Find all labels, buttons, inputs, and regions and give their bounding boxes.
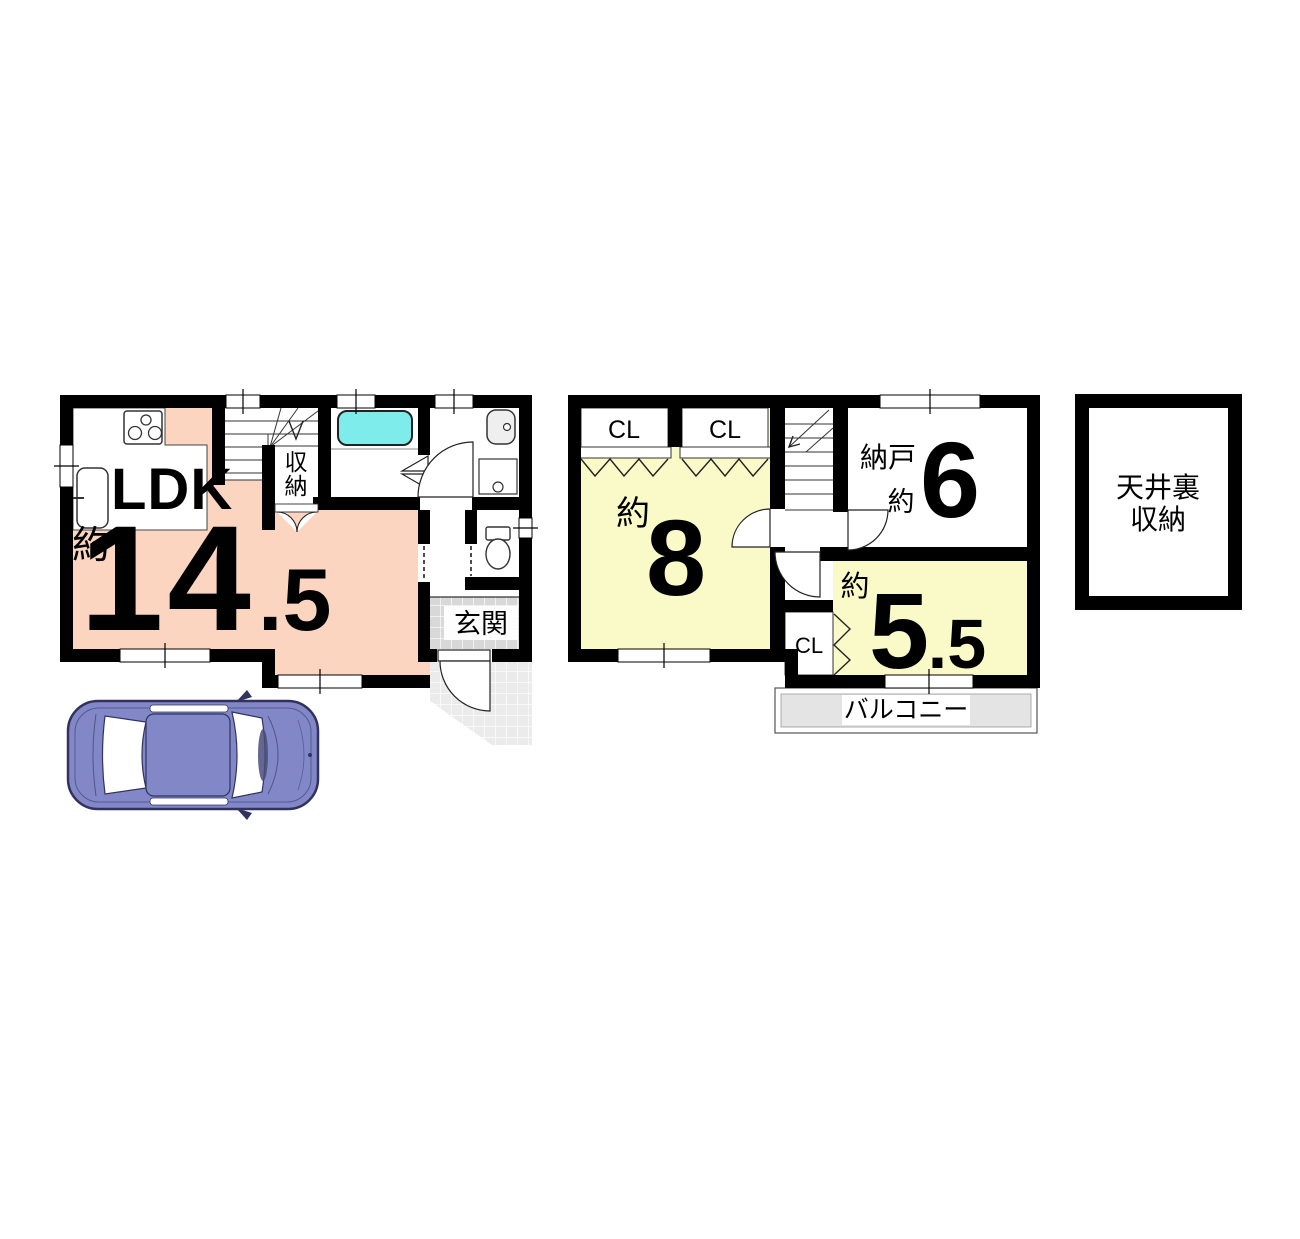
stairs-2f-icon: [785, 408, 833, 510]
closet-b-label: CL: [709, 416, 741, 444]
room8-area-label: 8: [646, 497, 706, 618]
storeroom-name-label: 納戸: [860, 442, 916, 473]
ldk-area-label: 14: [80, 494, 255, 662]
door-arc: [848, 510, 888, 550]
car-side-window: [150, 705, 228, 712]
room55-approx-label: 約: [840, 570, 869, 603]
floorplan-page: LDK 約 14 .5 収納 玄関: [0, 0, 1300, 1239]
closet-a-label: CL: [608, 416, 640, 444]
room55-area-label: 5: [869, 570, 929, 691]
car-vent: [258, 729, 268, 781]
room55-area-frac-label: .5: [928, 605, 986, 683]
attic-label-line2: 収納: [1130, 504, 1186, 535]
washer-pan-icon: [479, 459, 517, 494]
entrance-label: 玄関: [454, 609, 508, 639]
room8-approx-label: 約: [616, 495, 650, 533]
storeroom-area-label: 6: [920, 419, 980, 540]
car-emblem: [308, 753, 312, 757]
car-side-window: [150, 798, 228, 805]
door-leaf: [438, 650, 490, 661]
car-rear-window: [103, 716, 147, 794]
closet-c-label: CL: [795, 633, 823, 658]
window: [880, 389, 980, 414]
window: [513, 518, 538, 538]
balcony-label: バルコニー: [844, 696, 969, 724]
toilet-icon: [486, 527, 510, 569]
storage-label: 収納: [285, 449, 308, 499]
washbasin-icon: [487, 410, 515, 444]
first-floor-plan: LDK 約 14 .5 収納 玄関: [54, 389, 538, 745]
storeroom-approx-label: 約: [888, 487, 915, 517]
attic-storage-plan: 天井裏 収納: [1075, 394, 1242, 610]
second-floor-plan: CL CL 約 8 納戸 約 6 約 5 .5 CL バルコニー: [568, 389, 1040, 733]
stove-icon: [124, 411, 162, 444]
bathtub-icon: [331, 411, 418, 449]
ldk-area-frac-label: .5: [258, 550, 331, 649]
car-icon: [68, 690, 318, 820]
floorplan-drawing: LDK 約 14 .5 収納 玄関: [0, 0, 1300, 1239]
attic-label-line1: 天井裏: [1116, 472, 1200, 503]
car-roof: [146, 714, 230, 796]
